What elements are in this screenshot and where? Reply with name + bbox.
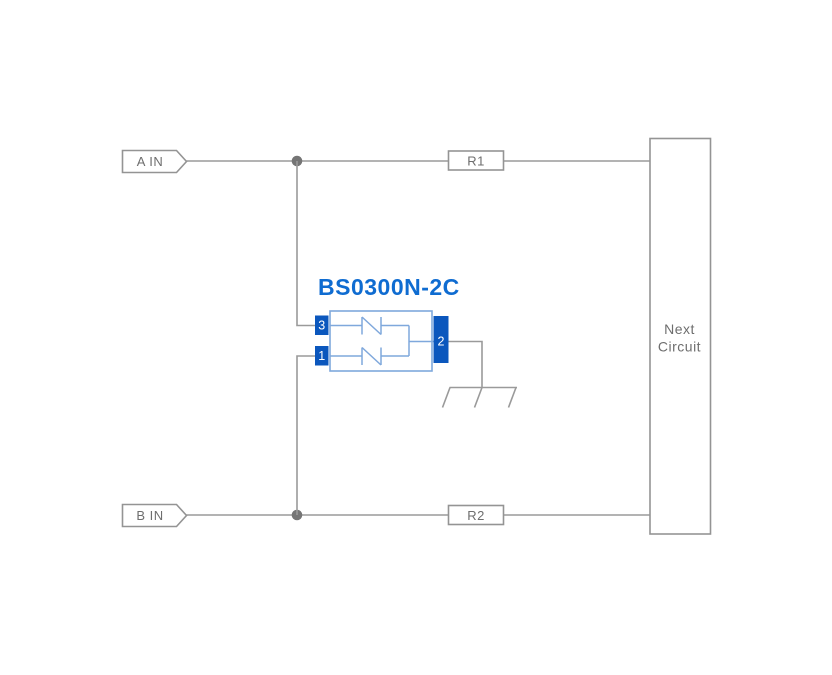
wire-pin1-to-b	[297, 356, 315, 515]
resistor-r1: R1	[449, 151, 504, 170]
wire-a-to-pin3	[297, 161, 315, 326]
next-circuit-label-line2: Circuit	[658, 339, 701, 355]
chassis-ground-symbol	[443, 388, 518, 408]
b-in-net: B IN	[123, 505, 651, 527]
pin-1: 1	[315, 346, 329, 366]
pin-2-label: 2	[438, 335, 445, 349]
pin-2: 2	[434, 316, 449, 363]
tvs-component: BS0300N-2C	[315, 274, 460, 371]
component-title: BS0300N-2C	[318, 274, 460, 300]
r1-label: R1	[467, 154, 485, 169]
wire-pin2-to-ground	[449, 342, 483, 388]
pin-1-label: 1	[318, 349, 325, 363]
next-circuit-block: Next Circuit	[650, 139, 711, 535]
schematic-canvas: A IN B IN R1 R2 BS0300N-2C	[0, 0, 832, 675]
resistor-r2: R2	[449, 506, 504, 525]
a-in-label: A IN	[137, 154, 164, 169]
next-circuit-label-line1: Next	[664, 321, 695, 337]
ground-net	[443, 342, 518, 408]
pin-3: 3	[315, 316, 329, 336]
r2-label: R2	[467, 508, 485, 523]
a-in-net: A IN	[123, 151, 651, 173]
b-in-label: B IN	[136, 508, 163, 523]
circuit-diagram: A IN B IN R1 R2 BS0300N-2C	[0, 0, 832, 675]
pin-3-label: 3	[318, 319, 325, 333]
